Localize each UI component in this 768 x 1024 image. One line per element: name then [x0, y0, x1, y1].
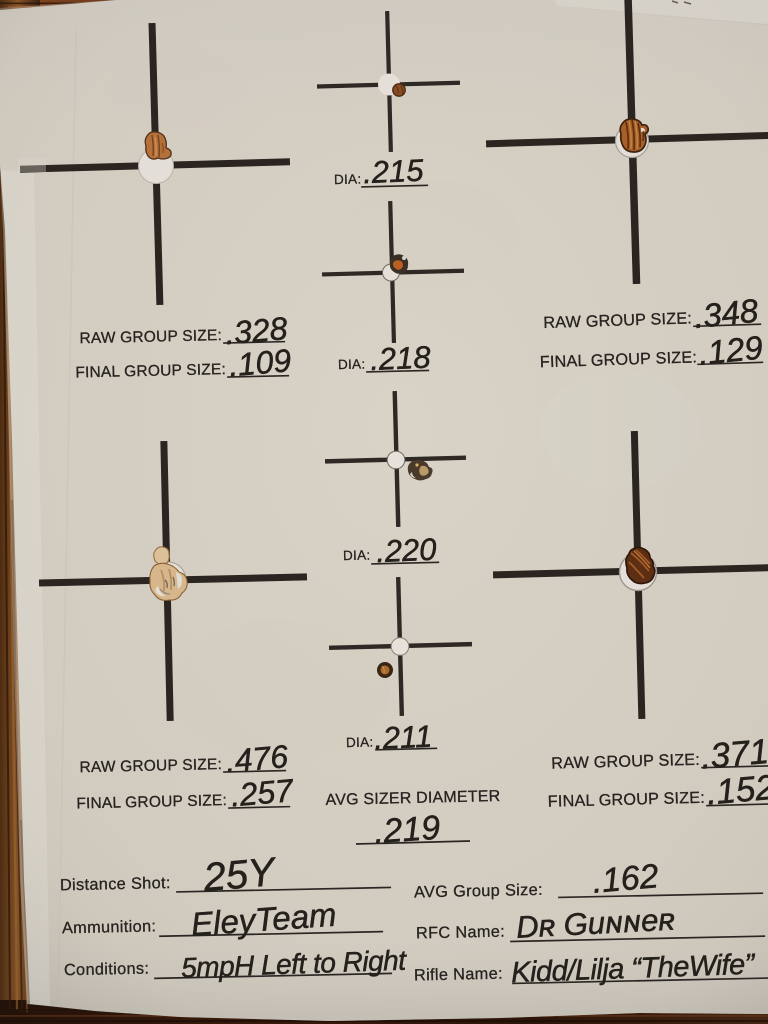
- svg-text:FINAL GROUP SIZE:: FINAL GROUP SIZE:: [76, 792, 227, 812]
- svg-text:AVG Group Size:: AVG Group Size:: [414, 881, 543, 902]
- svg-text:.215: .215: [362, 153, 425, 191]
- svg-text:.109: .109: [227, 342, 292, 383]
- svg-text:.152: .152: [705, 768, 768, 813]
- svg-text:.218: .218: [369, 340, 432, 378]
- svg-text:.219: .219: [373, 809, 442, 852]
- svg-text:.211: .211: [373, 719, 433, 756]
- svg-text:Rifle Name:: Rifle Name:: [414, 965, 503, 985]
- svg-text:DIA:: DIA:: [343, 547, 371, 563]
- svg-text:Conditions:: Conditions:: [64, 959, 150, 979]
- svg-text:RAW GROUP SIZE:: RAW GROUP SIZE:: [79, 327, 222, 347]
- svg-text:.220: .220: [375, 532, 437, 570]
- svg-text:DIA:: DIA:: [334, 171, 362, 187]
- svg-text:DIA:: DIA:: [346, 734, 374, 750]
- svg-text:.129: .129: [697, 328, 765, 372]
- svg-text:FINAL GROUP SIZE:: FINAL GROUP SIZE:: [75, 361, 226, 381]
- svg-text:25Y: 25Y: [201, 850, 280, 900]
- svg-text:RFC Name:: RFC Name:: [416, 923, 505, 943]
- svg-text:Distance Shot:: Distance Shot:: [60, 874, 171, 894]
- svg-text:Ammunition:: Ammunition:: [62, 917, 157, 937]
- svg-text:.257: .257: [229, 772, 295, 813]
- svg-text:RAW GROUP SIZE:: RAW GROUP SIZE:: [79, 756, 222, 776]
- svg-text:DIA:: DIA:: [338, 356, 366, 372]
- svg-text:.162: .162: [591, 857, 660, 901]
